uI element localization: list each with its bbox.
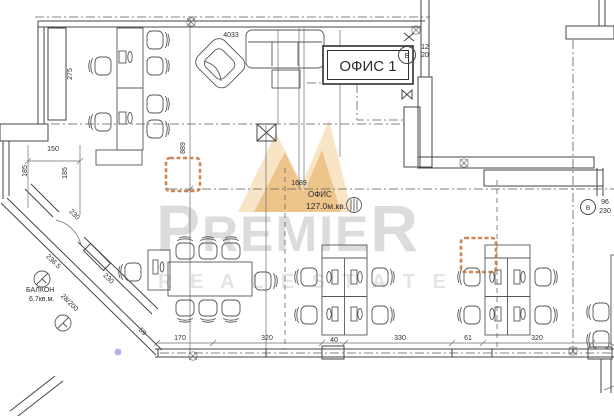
highlight-dot [115, 349, 122, 356]
dimension-text: 12 [421, 44, 429, 51]
sofa [246, 30, 324, 68]
marker-circle-right: В [581, 200, 596, 215]
svg-text:В: В [586, 205, 590, 212]
dimension-text: 236.5 [44, 253, 61, 270]
watermark-tagline: R E A L E S T A T E [158, 271, 452, 293]
office-title: ОФИС 1 [339, 58, 396, 75]
floorplan-svg: PREMIER R E A L E S T A T E [0, 0, 614, 416]
dimension-text: 61 [464, 335, 472, 342]
dimension-text: 320 [261, 335, 273, 342]
dimension-text: 230 [101, 272, 114, 285]
room-area: 127.0м.кв. [306, 201, 346, 211]
column-marker-1 [166, 158, 200, 191]
column-block [257, 124, 276, 141]
balcony-area: 6.7кв.м. [29, 296, 54, 303]
balcony-name: БАЛКОН [26, 287, 54, 294]
room-name: ОФИС [308, 190, 332, 199]
dimension-text: 96 [601, 199, 609, 206]
door-swing-arc [56, 220, 81, 245]
armchair [192, 35, 249, 92]
dimension-text: 40 [330, 337, 338, 344]
dimension-text: 320 [531, 335, 543, 342]
dimension-text: 330 [394, 335, 406, 342]
dimension-text: 20 [421, 52, 429, 59]
dimension-text: 185 [62, 167, 69, 179]
floorplan-canvas: PREMIER R E A L E S T A T E [0, 0, 614, 416]
workstation-cluster-2 [458, 245, 558, 335]
column-marker-2 [461, 238, 496, 272]
dimension-text: 150 [47, 146, 59, 153]
dimension-text: 4033 [223, 32, 239, 39]
dimension-text: 275 [67, 68, 74, 80]
dimension-text: 230 [599, 208, 611, 215]
coffee-table [272, 70, 300, 88]
desk-group-topleft [89, 28, 170, 165]
dimension-text: 59 [137, 327, 148, 338]
dimension-text: 185 [22, 165, 29, 177]
dimension-text: 230 [67, 208, 80, 221]
dimension-text: 28/200 [59, 293, 79, 313]
dimension-text: 889 [180, 142, 187, 154]
workstation-cluster-3-partial [587, 255, 614, 349]
svg-text:В: В [405, 53, 410, 60]
dimension-text: 170 [174, 335, 186, 342]
dimension-text: 1689 [291, 180, 307, 187]
